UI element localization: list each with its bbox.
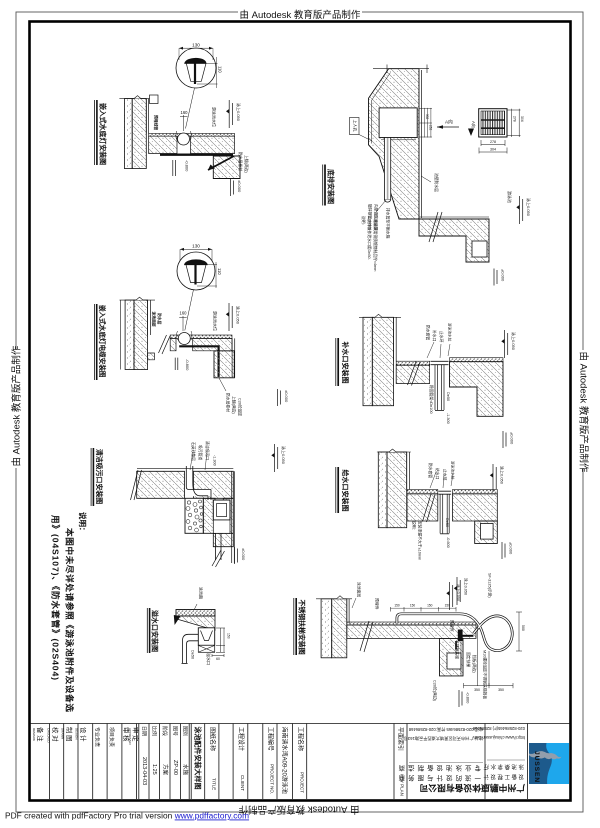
svg-text:审 定: 审 定 xyxy=(132,727,141,742)
svg-text:160: 160 xyxy=(181,110,189,115)
svg-text:±0.000: ±0.000 xyxy=(241,548,246,561)
svg-text:由 Autodesk 教育版产品制作: 由 Autodesk 教育版产品制作 xyxy=(10,345,22,466)
svg-text:给水口安装图: 给水口安装图 xyxy=(341,470,350,512)
svg-text:泳上0.050: 泳上0.050 xyxy=(511,332,517,351)
svg-text:止水环: 止水环 xyxy=(439,331,444,343)
svg-text:嵌入式水底灯安装图: 嵌入式水底灯安装图 xyxy=(99,103,108,165)
svg-text:±0.000: ±0.000 xyxy=(510,432,515,445)
svg-text:用》(04S107)、《防水套管》(02S404): 用》(04S107)、《防水套管》(02S404) xyxy=(51,514,62,680)
svg-text:020-82586465(F) 82586468: 020-82586465(F) 82586468 xyxy=(472,726,525,731)
svg-text:清洁吸污口: 清洁吸污口 xyxy=(205,441,210,460)
svg-text:说明：: 说明： xyxy=(78,512,88,535)
svg-text:不锈钢扶梯安装图: 不锈钢扶梯安装图 xyxy=(298,600,307,655)
svg-text:A向: A向 xyxy=(445,119,453,125)
svg-text:图别: 图别 xyxy=(181,726,188,736)
svg-text:304: 304 xyxy=(490,148,496,152)
svg-text:泳池面层: 泳池面层 xyxy=(357,582,362,597)
svg-text:C20砼固定: C20砼固定 xyxy=(238,398,243,417)
svg-text:JUSSEN: JUSSEN xyxy=(533,751,540,783)
svg-text:安装渗漏不大于±10mm: 安装渗漏不大于±10mm xyxy=(417,521,422,560)
svg-text:150: 150 xyxy=(427,604,433,608)
svg-text:110: 110 xyxy=(217,268,222,275)
svg-text:防水套管: 防水套管 xyxy=(425,325,430,340)
svg-text:-1.300: -1.300 xyxy=(213,455,217,466)
svg-text:PROJECT: PROJECT xyxy=(300,772,305,793)
svg-text:日期: 日期 xyxy=(140,726,146,736)
svg-text:1:25: 1:25 xyxy=(151,764,157,775)
svg-text:C20砼(两边): C20砼(两边) xyxy=(433,680,438,702)
svg-text:泳上0.050: 泳上0.050 xyxy=(456,584,461,601)
svg-text:350: 350 xyxy=(498,688,504,692)
svg-text:阶段: 阶段 xyxy=(161,726,168,736)
svg-text:补水口: 补水口 xyxy=(432,330,437,342)
svg-text:底排安装图: 底排安装图 xyxy=(326,169,335,204)
svg-text:-1.300: -1.300 xyxy=(446,413,450,424)
svg-text:预埋线管: 预埋线管 xyxy=(154,115,159,130)
svg-text:补水口安装图: 补水口安装图 xyxy=(341,341,350,384)
svg-text:CHECKED: CHECKED xyxy=(47,728,51,744)
svg-text:DESIGN: DESIGN xyxy=(75,728,79,740)
svg-text:350: 350 xyxy=(474,688,480,692)
svg-text:挡板(两边): 挡板(两边) xyxy=(472,655,477,673)
svg-text:±0.000: ±0.000 xyxy=(237,180,242,193)
svg-text:DRAWN: DRAWN xyxy=(61,728,65,739)
svg-text:工程名称: 工程名称 xyxy=(297,727,305,751)
svg-text:防水层: 防水层 xyxy=(157,313,162,325)
svg-text:278: 278 xyxy=(513,116,517,122)
svg-text:CLIENT: CLIENT xyxy=(240,775,245,791)
svg-text:A向: A向 xyxy=(471,121,477,128)
svg-text:地址:广州市天河区黄埔大道西平云路163号: 地址:广州市天河区黄埔大道西平云路163号 xyxy=(404,735,483,742)
svg-text:平面索引: 平面索引 xyxy=(397,727,405,751)
svg-text:电话:020-82586465 传真:020-8258646: 电话:020-82586465 传真:020-82586468 xyxy=(408,726,483,733)
svg-text:说明:: 说明: xyxy=(411,521,416,530)
svg-text:设备工程设计: 设备工程设计 xyxy=(482,773,524,781)
svg-text:上人孔: 上人孔 xyxy=(353,120,359,132)
svg-text:游泳池水位: 游泳池水位 xyxy=(448,323,453,342)
svg-text:比例: 比例 xyxy=(151,726,158,736)
svg-text:150: 150 xyxy=(394,604,400,608)
svg-text:302: 302 xyxy=(425,114,429,120)
svg-text:1.底排兼作泄水口用Dn50.: 1.底排兼作泄水口用Dn50. xyxy=(367,216,372,260)
svg-text:150: 150 xyxy=(227,633,231,639)
svg-text:吸污管道: 吸污管道 xyxy=(198,445,203,460)
svg-text:160: 160 xyxy=(180,311,188,316)
svg-text:广州中鹏康体设备有限公司: 广州中鹏康体设备有限公司 xyxy=(419,783,525,794)
svg-text:防水层卷材: 防水层卷材 xyxy=(238,152,243,171)
svg-text:清洁吸污口安装图: 清洁吸污口安装图 xyxy=(95,449,104,504)
svg-text:110: 110 xyxy=(218,66,223,73)
svg-text:游泳池水位: 游泳池水位 xyxy=(451,461,456,480)
svg-text:泳池配件安装大样图: 泳池配件安装大样图 xyxy=(194,727,203,790)
svg-text:专业泳池设备制造商: 专业泳池设备制造商 xyxy=(396,764,482,773)
svg-text:泳上0.050: 泳上0.050 xyxy=(464,578,469,595)
svg-text:预埋件: 预埋件 xyxy=(450,620,455,632)
svg-text:图号: 图号 xyxy=(172,726,178,736)
svg-text:校 对: 校 对 xyxy=(51,727,60,742)
svg-text:上翻(两边): 上翻(两边) xyxy=(244,155,249,173)
svg-text:SF-3125(示意): SF-3125(示意) xyxy=(488,573,493,598)
svg-text:150: 150 xyxy=(410,604,416,608)
svg-text:方案: 方案 xyxy=(161,764,169,776)
svg-text:130: 130 xyxy=(192,43,200,48)
svg-text:ZP-00: ZP-00 xyxy=(172,760,178,775)
svg-text:2013-04-03: 2013-04-03 xyxy=(141,757,147,785)
svg-text:±0.000: ±0.000 xyxy=(509,542,514,555)
svg-text:本图中未尽详处请参照《游泳池附件及设备选: 本图中未尽详处请参照《游泳池附件及设备选 xyxy=(65,528,76,712)
svg-text:由 Autodesk 教育版产品制作: 由 Autodesk 教育版产品制作 xyxy=(238,804,359,816)
svg-text:止水环: 止水环 xyxy=(443,469,448,481)
svg-text:304: 304 xyxy=(520,116,524,122)
svg-text:TITLE: TITLE xyxy=(212,778,217,790)
svg-text:设 计: 设 计 xyxy=(79,727,88,742)
svg-text:排水管至平衡水箱: 排水管至平衡水箱 xyxy=(386,208,391,239)
svg-text:预埋件: 预埋件 xyxy=(375,598,380,610)
svg-text:海南清水湾A09-20游泳池: 海南清水湾A09-20游泳池 xyxy=(281,727,289,794)
svg-text:278: 278 xyxy=(490,140,496,144)
svg-text:De50: De50 xyxy=(190,650,194,659)
svg-text:PROJECT NO.: PROJECT NO. xyxy=(270,764,275,794)
svg-text:说明:: 说明: xyxy=(361,216,366,225)
svg-text:M10螺栓固定不锈钢扶梯挡板: M10螺栓固定不锈钢扶梯挡板 xyxy=(483,650,488,699)
svg-text:泳上0.050: 泳上0.050 xyxy=(526,198,532,217)
svg-text:溢水口: 溢水口 xyxy=(206,653,212,665)
svg-text:防水套管: 防水套管 xyxy=(428,463,433,478)
svg-text:60: 60 xyxy=(216,657,220,661)
svg-text:一流的设计与服务商: 一流的设计与服务商 xyxy=(396,774,482,783)
svg-text:-0.800: -0.800 xyxy=(185,160,190,172)
svg-text:±0.000: ±0.000 xyxy=(284,390,289,403)
svg-text:-0.600: -0.600 xyxy=(446,537,450,548)
svg-text:由 Autodesk 教育版产品制作: 由 Autodesk 教育版产品制作 xyxy=(578,352,590,473)
svg-text:水施: 水施 xyxy=(181,764,189,776)
svg-text:游泳池水位: 游泳池水位 xyxy=(213,311,219,331)
svg-text:石英砂垫层: 石英砂垫层 xyxy=(191,442,196,461)
svg-text:备 注: 备 注 xyxy=(36,727,45,742)
svg-text:De50: De50 xyxy=(446,392,450,401)
svg-text:±0.000: ±0.000 xyxy=(501,269,506,282)
svg-text:固定扶梯: 固定扶梯 xyxy=(466,652,471,667)
svg-text:泳池面: 泳池面 xyxy=(199,587,205,599)
svg-text:130: 130 xyxy=(192,244,200,249)
svg-text:池壁防水层: 池壁防水层 xyxy=(434,173,439,192)
svg-text:泳池面层: 泳池面层 xyxy=(151,312,156,327)
svg-text:500: 500 xyxy=(521,625,525,631)
svg-text:专业负责: 专业负责 xyxy=(94,727,101,747)
svg-text:http://www.chinajussen.com: http://www.chinajussen.com xyxy=(473,735,525,740)
svg-text:泳上0.050: 泳上0.050 xyxy=(281,446,287,465)
svg-text:防水层卷材: 防水层卷材 xyxy=(226,393,231,412)
svg-text:252: 252 xyxy=(429,125,433,131)
svg-text:工程设计: 工程设计 xyxy=(237,727,245,751)
svg-text:给水口: 给水口 xyxy=(435,468,440,480)
svg-text:APPROVED: APPROVED xyxy=(128,728,132,746)
svg-text:稳固管架≮Dn100: 稳固管架≮Dn100 xyxy=(429,385,434,414)
svg-text:游泳池: 游泳池 xyxy=(507,191,513,203)
svg-text:泳上0.050: 泳上0.050 xyxy=(500,466,506,485)
svg-text:REMARK: REMARK xyxy=(32,728,36,741)
svg-text:不锈钢扶梯: 不锈钢扶梯 xyxy=(455,640,460,659)
svg-text:项目负责: 项目负责 xyxy=(108,727,115,747)
svg-text:由 Autodesk 教育版产品制作: 由 Autodesk 教育版产品制作 xyxy=(240,9,361,21)
svg-text:泳上0.050: 泳上0.050 xyxy=(236,103,242,122)
svg-text:De50: De50 xyxy=(445,518,449,527)
svg-text:工程编号: 工程编号 xyxy=(267,727,275,751)
svg-text:-0.800: -0.800 xyxy=(466,692,471,704)
svg-text:溢水口安装图: 溢水口安装图 xyxy=(151,610,160,652)
svg-text:游泳池水位: 游泳池水位 xyxy=(212,107,218,127)
svg-text:嵌入式水底灯电缆安装图: 嵌入式水底灯电缆安装图 xyxy=(98,305,107,378)
svg-text:上翻(两边): 上翻(两边) xyxy=(232,396,237,414)
svg-text:制 图: 制 图 xyxy=(65,727,74,742)
svg-text:2.格栅采用铜质镀铬制品拧≈4mm: 2.格栅采用铜质镀铬制品拧≈4mm xyxy=(373,216,378,271)
svg-text:-0.800: -0.800 xyxy=(185,359,190,371)
svg-text:泳池桑拿水疗: 泳池桑拿水疗 xyxy=(482,763,524,771)
svg-text:PDF created with pdfFactory Pr: PDF created with pdfFactory Pro trial ve… xyxy=(5,811,249,821)
svg-text:图纸名称: 图纸名称 xyxy=(209,727,217,751)
svg-text:泳上0.050: 泳上0.050 xyxy=(236,306,242,325)
